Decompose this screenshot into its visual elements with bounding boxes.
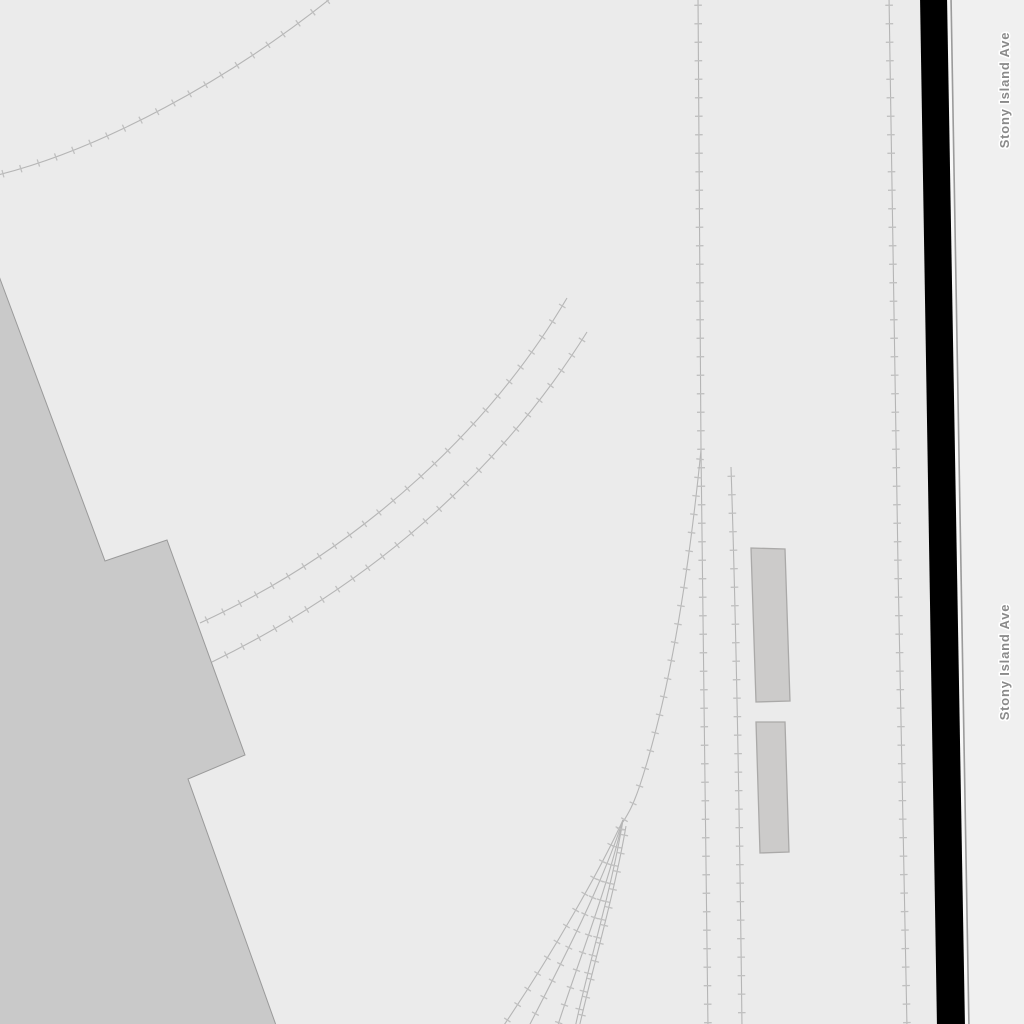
building — [756, 722, 789, 853]
street-label: Stony Island Ave — [997, 32, 1012, 149]
map-viewport: Stony Island AveStony Island Ave — [0, 0, 1024, 1024]
street-label: Stony Island Ave — [997, 604, 1012, 721]
map-canvas[interactable]: Stony Island AveStony Island Ave — [0, 0, 1024, 1024]
building — [751, 548, 790, 702]
